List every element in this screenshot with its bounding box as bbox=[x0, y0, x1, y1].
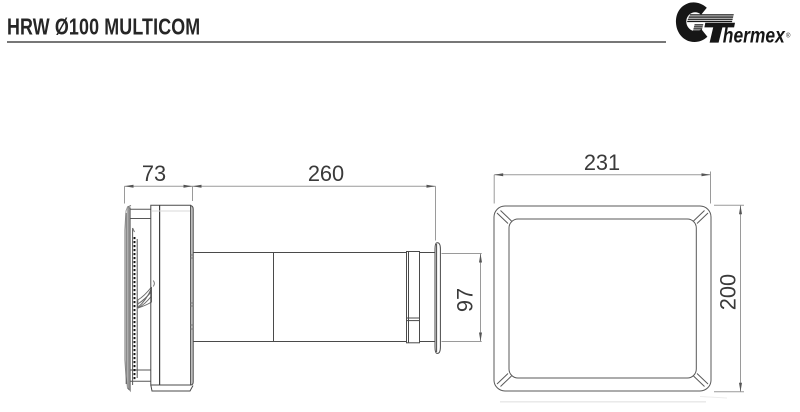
svg-text:HRW Ø100 MULTICOM: HRW Ø100 MULTICOM bbox=[7, 14, 200, 40]
svg-text:231: 231 bbox=[584, 150, 620, 175]
svg-text:260: 260 bbox=[308, 161, 344, 186]
svg-text:®: ® bbox=[786, 33, 791, 40]
svg-text:hermex: hermex bbox=[723, 23, 786, 47]
svg-text:73: 73 bbox=[142, 161, 166, 186]
svg-text:200: 200 bbox=[716, 274, 741, 310]
svg-text:97: 97 bbox=[453, 288, 478, 312]
